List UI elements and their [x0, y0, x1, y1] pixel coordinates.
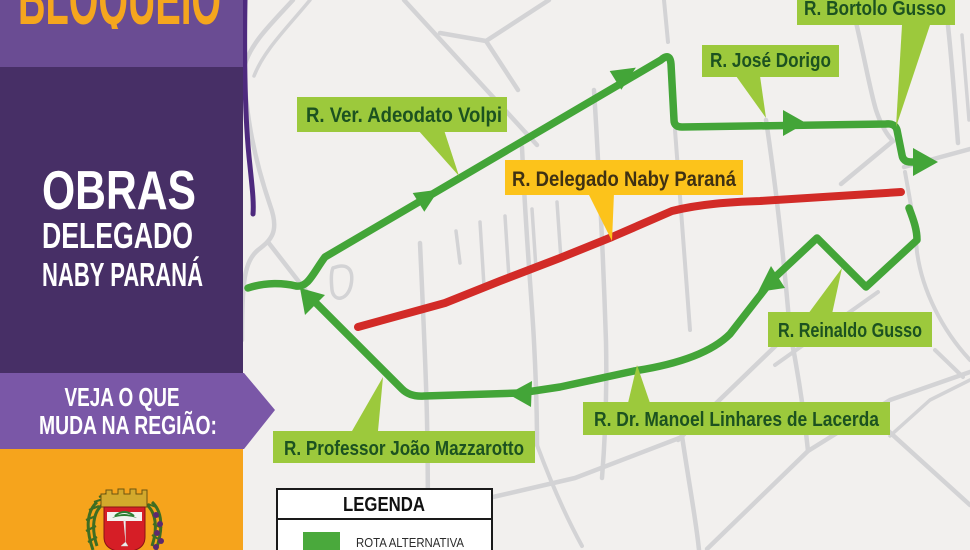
svg-text:R. Delegado Naby Paraná: R. Delegado Naby Paraná	[512, 168, 736, 191]
svg-text:R. Reinaldo Gusso: R. Reinaldo Gusso	[778, 320, 922, 342]
svg-text:MUDA NA REGIÃO:: MUDA NA REGIÃO:	[39, 410, 217, 440]
svg-text:R. Professor João Mazzarotto: R. Professor João Mazzarotto	[284, 438, 524, 460]
svg-text:NABY PARANÁ: NABY PARANÁ	[42, 256, 203, 293]
svg-text:VEJA O QUE: VEJA O QUE	[65, 382, 180, 412]
svg-text:ROTA ALTERNATIVA: ROTA ALTERNATIVA	[356, 535, 464, 550]
svg-text:DELEGADO: DELEGADO	[42, 215, 193, 256]
svg-text:R. Bortolo Gusso: R. Bortolo Gusso	[804, 0, 946, 20]
svg-text:R. Ver. Adeodato Volpi: R. Ver. Adeodato Volpi	[306, 104, 502, 127]
svg-text:OBRAS: OBRAS	[42, 159, 196, 221]
svg-text:LEGENDA: LEGENDA	[343, 494, 425, 516]
svg-text:R. José Dorigo: R. José Dorigo	[710, 50, 831, 72]
svg-text:R. Dr. Manoel Linhares de Lace: R. Dr. Manoel Linhares de Lacerda	[594, 409, 880, 431]
